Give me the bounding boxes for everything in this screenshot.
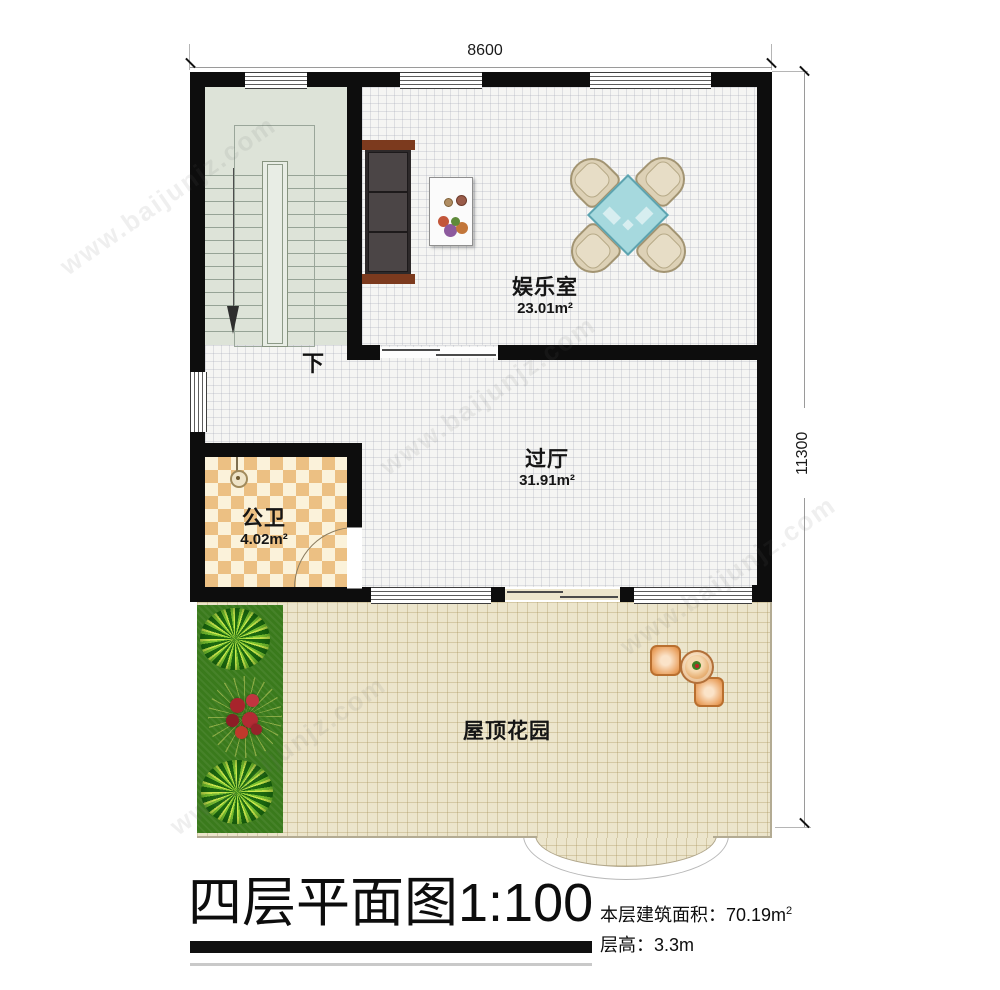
window — [634, 587, 752, 604]
room-name: 娱乐室 — [480, 275, 610, 300]
sliding-door-panel — [560, 596, 618, 598]
floor-height-value: 3.3m — [654, 935, 694, 955]
room-name: 公卫 — [214, 506, 314, 531]
stair-down-arrow-icon — [227, 306, 239, 334]
garden-edge-bottom-left — [197, 836, 537, 838]
floor-plan-page: { "title": { "main": "四层平面图1:100" }, "in… — [0, 0, 1000, 990]
wall — [190, 587, 371, 602]
floor-area-sup: 2 — [786, 905, 792, 917]
wall — [347, 457, 362, 527]
palm-plant-icon — [200, 608, 270, 670]
window — [190, 372, 207, 432]
dimension-width-label: 8600 — [455, 42, 515, 60]
wall — [190, 432, 205, 602]
wall — [482, 72, 590, 87]
extension-line — [775, 827, 811, 828]
floor-height-info: 层高：3.3m — [600, 931, 694, 957]
room-area: 31.91m² — [482, 472, 612, 490]
garden-stool — [650, 645, 681, 676]
flower-decor-icon — [695, 664, 699, 668]
title-underline — [190, 963, 592, 966]
window — [400, 72, 482, 89]
room-label-hall: 过厅 31.91m² — [482, 447, 612, 490]
flower-icon — [226, 714, 239, 727]
room-area: 23.01m² — [480, 300, 610, 318]
wall — [757, 72, 772, 602]
palm-plant-icon — [201, 760, 273, 824]
stair-railing — [262, 161, 288, 347]
wall — [190, 72, 205, 372]
shower-head-icon — [229, 457, 245, 491]
wall — [620, 587, 634, 602]
dimension-height-label: 11300 — [794, 408, 812, 498]
flower-icon — [251, 724, 262, 735]
sofa-cushion — [368, 152, 408, 192]
sofa — [365, 150, 411, 274]
window — [371, 587, 491, 604]
window — [245, 72, 307, 89]
flower-decor-icon — [451, 217, 460, 226]
floor-area-info: 本层建筑面积：70.19m2 — [600, 901, 792, 927]
dimension-line-top — [190, 67, 772, 68]
garden-edge-bottom-right — [713, 836, 772, 838]
sliding-door-panel — [436, 354, 496, 356]
decor-icon — [456, 195, 467, 206]
sliding-door-panel — [382, 349, 440, 351]
floor-area-value: 70.19m — [726, 905, 786, 925]
room-name: 过厅 — [482, 447, 612, 472]
stair-down-label: 下 — [302, 346, 324, 378]
sliding-door-panel — [507, 591, 563, 593]
floor-height-label: 层高： — [600, 935, 654, 955]
wall — [190, 443, 362, 457]
wall — [491, 587, 505, 602]
sliding-door — [505, 589, 620, 600]
bathroom-door — [347, 527, 362, 589]
garden-table — [680, 650, 714, 684]
stair-direction-line — [233, 168, 234, 308]
flower-icon — [246, 694, 259, 707]
room-label-bath: 公卫 4.02m² — [214, 506, 314, 549]
sliding-door — [380, 347, 498, 358]
stair-railing-inner — [267, 164, 283, 344]
floor-area-label: 本层建筑面积： — [600, 905, 726, 925]
title-underbar — [190, 941, 592, 953]
room-name: 屋顶花园 — [442, 719, 572, 744]
page-title: 四层平面图1:100 — [188, 858, 593, 937]
window — [590, 72, 711, 89]
wall — [752, 585, 772, 602]
sofa-cushion — [368, 192, 408, 232]
sofa-cushion — [368, 232, 408, 272]
garden-edge-right — [770, 602, 772, 838]
room-label-entertainment: 娱乐室 23.01m² — [480, 275, 610, 318]
room-area: 4.02m² — [214, 531, 314, 549]
coffee-table — [429, 177, 473, 246]
flower-icon — [235, 726, 248, 739]
decor-icon — [444, 198, 453, 207]
flower-icon — [230, 698, 245, 713]
flower-cluster-icon — [208, 676, 282, 758]
room-label-garden: 屋顶花园 — [442, 719, 572, 744]
wall — [498, 345, 757, 360]
chair-pad — [643, 230, 685, 272]
sofa-armrest — [361, 274, 415, 284]
stair-steps-right — [286, 163, 347, 343]
wall — [347, 345, 380, 360]
wall — [347, 72, 362, 345]
sofa-armrest — [361, 140, 415, 150]
